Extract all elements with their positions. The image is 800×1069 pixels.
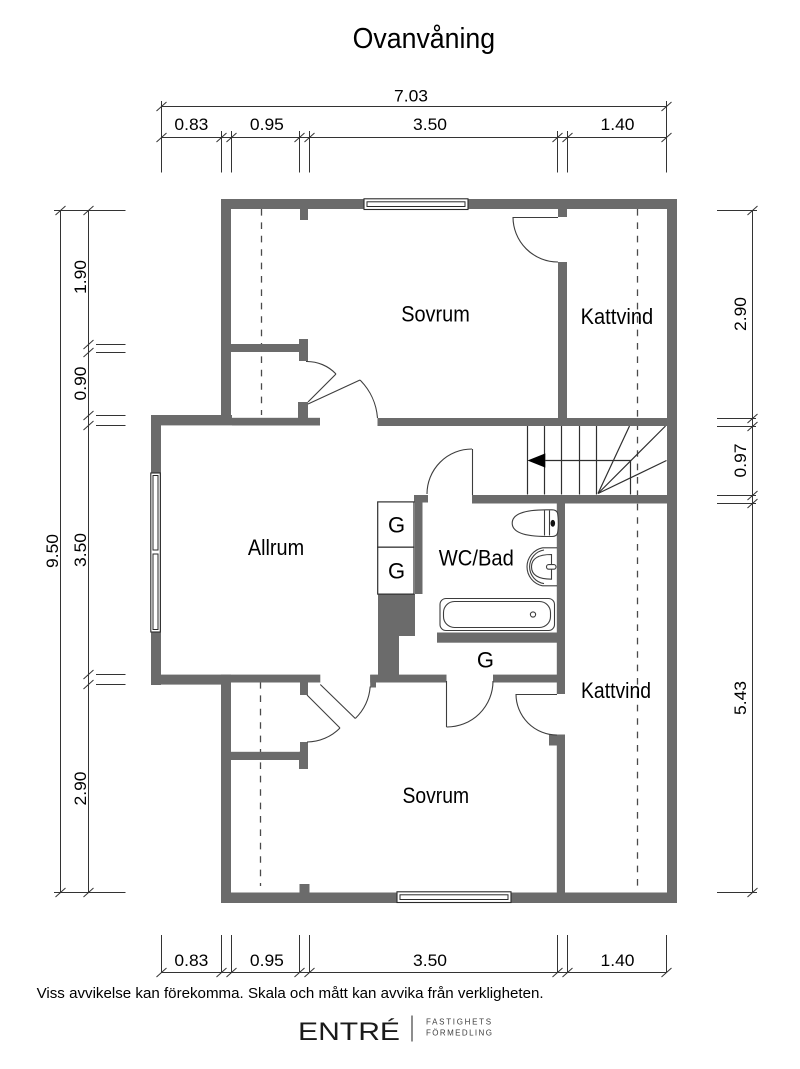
svg-text:3.50: 3.50 <box>71 533 90 567</box>
svg-text:Kattvind: Kattvind <box>581 678 651 703</box>
svg-text:Viss avvikelse kan förekomma.: Viss avvikelse kan förekomma. Skala och … <box>37 985 544 1002</box>
svg-text:3.50: 3.50 <box>413 115 447 134</box>
svg-text:2.90: 2.90 <box>71 772 90 806</box>
svg-text:0.90: 0.90 <box>71 367 90 401</box>
svg-text:0.95: 0.95 <box>250 951 284 970</box>
svg-text:2.90: 2.90 <box>731 297 750 331</box>
svg-text:0.83: 0.83 <box>174 951 208 970</box>
svg-text:3.50: 3.50 <box>413 951 447 970</box>
svg-text:G: G <box>388 559 405 584</box>
svg-text:1.90: 1.90 <box>71 260 90 294</box>
svg-text:9.50: 9.50 <box>43 534 62 568</box>
svg-text:G: G <box>477 648 494 673</box>
svg-text:0.83: 0.83 <box>174 115 208 134</box>
svg-text:0.97: 0.97 <box>731 444 750 478</box>
svg-text:WC/Bad: WC/Bad <box>439 546 514 571</box>
svg-text:FÖRMEDLING: FÖRMEDLING <box>426 1028 493 1037</box>
svg-text:Allrum: Allrum <box>248 535 304 560</box>
svg-text:ENTRÉ: ENTRÉ <box>298 1017 400 1046</box>
svg-text:5.43: 5.43 <box>731 681 750 715</box>
svg-text:0.95: 0.95 <box>250 115 284 134</box>
svg-text:Sovrum: Sovrum <box>401 302 470 327</box>
svg-text:7.03: 7.03 <box>394 86 428 105</box>
svg-text:Kattvind: Kattvind <box>581 304 654 329</box>
svg-text:1.40: 1.40 <box>601 951 635 970</box>
svg-text:FASTIGHETS: FASTIGHETS <box>426 1018 493 1027</box>
svg-text:Sovrum: Sovrum <box>403 783 470 808</box>
svg-text:Ovanvåning: Ovanvåning <box>353 23 496 55</box>
svg-text:G: G <box>388 513 405 538</box>
svg-text:1.40: 1.40 <box>601 115 635 134</box>
